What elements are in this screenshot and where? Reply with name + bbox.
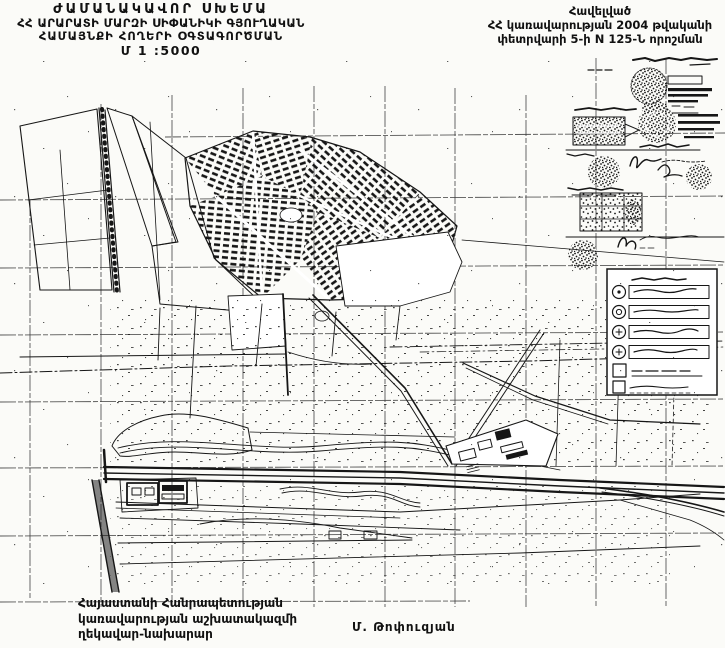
- annex-note: Հավելված ՀՀ կառավարության 2004 թվականի փ…: [476, 4, 724, 46]
- map-canvas: [0, 0, 725, 648]
- title-block: ԺԱՄԱՆԱԿԱՎՈՐ ՍԽԵՄԱ ՀՀ ԱՐԱՐԱՏԻ ՄԱՐԶԻ ՍԻՓԱՆ…: [8, 3, 314, 58]
- signature-title-line2: կառավարության աշխատակազմի: [78, 612, 297, 628]
- signature-title-line3: ղեկավար-նախարար: [78, 627, 297, 643]
- scanned-map-page: ԺԱՄԱՆԱԿԱՎՈՐ ՍԽԵՄԱ ՀՀ ԱՐԱՐԱՏԻ ՄԱՐԶԻ ՍԻՓԱՆ…: [0, 0, 725, 648]
- annex-line3: փետրվարի 5-ի N 125-Ն որոշման: [476, 32, 724, 46]
- annex-line2: ՀՀ կառավարության 2004 թվականի: [476, 18, 724, 32]
- map-scale-label: Մ 1 :5000: [8, 43, 314, 58]
- annex-line1: Հավելված: [476, 4, 724, 18]
- scan-noise: [0, 52, 725, 612]
- signature-title-block: Հայաստանի Հանրապետության կառավարության ա…: [78, 596, 297, 643]
- map-title-line3: ՀԱՄԱՅՆՔԻ ՀՈՂԵՐԻ ՕԳՏԱԳՈՐԾՄԱՆ: [8, 30, 314, 43]
- signature-title-line1: Հայաստանի Հանրապետության: [78, 596, 297, 612]
- signatory-name: Մ. Թոփուզյան: [352, 620, 456, 634]
- map-title-line1: ԺԱՄԱՆԱԿԱՎՈՐ ՍԽԵՄԱ: [8, 3, 314, 17]
